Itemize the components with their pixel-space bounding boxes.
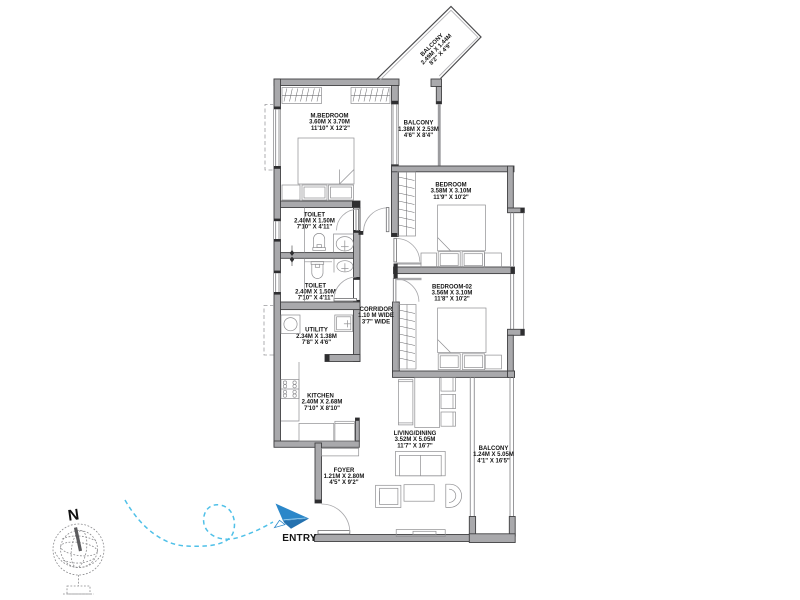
svg-text:TOILET: TOILET xyxy=(304,212,326,218)
svg-text:KITCHEN: KITCHEN xyxy=(307,394,334,400)
svg-text:2.40M X 1.50M: 2.40M X 1.50M xyxy=(295,290,336,296)
svg-text:N: N xyxy=(67,506,80,524)
svg-text:4'1" X 16'5": 4'1" X 16'5" xyxy=(477,458,510,464)
svg-text:4'6" X 8'4": 4'6" X 8'4" xyxy=(404,133,433,139)
svg-text:11'10" X 12'2": 11'10" X 12'2" xyxy=(311,126,350,132)
svg-text:1.21M X 2.80M: 1.21M X 2.80M xyxy=(324,474,365,480)
svg-text:2.34M X 1.38M: 2.34M X 1.38M xyxy=(296,334,337,340)
svg-text:7'10" X 4'11": 7'10" X 4'11" xyxy=(298,296,334,302)
svg-text:7'10" X 4'11": 7'10" X 4'11" xyxy=(297,225,333,231)
svg-text:BALCONY: BALCONY xyxy=(404,121,434,127)
svg-text:1.24M X 5.05M: 1.24M X 5.05M xyxy=(473,452,514,458)
svg-text:7'8" X 4'6": 7'8" X 4'6" xyxy=(302,340,331,346)
svg-text:UTILITY: UTILITY xyxy=(305,328,328,334)
svg-text:2.40M X 1.50M: 2.40M X 1.50M xyxy=(294,219,335,225)
svg-text:CORRIDOR: CORRIDOR xyxy=(360,307,393,313)
svg-text:BEDROOM-02: BEDROOM-02 xyxy=(432,284,473,290)
svg-text:2.40M X 2.68M: 2.40M X 2.68M xyxy=(302,400,343,406)
svg-text:TOILET: TOILET xyxy=(305,283,327,289)
svg-text:3.60M X 3.70M: 3.60M X 3.70M xyxy=(309,120,350,126)
svg-text:ENTRY: ENTRY xyxy=(282,533,317,544)
svg-text:7'10" X 8'10": 7'10" X 8'10" xyxy=(304,406,340,412)
svg-text:M.BEDROOM: M.BEDROOM xyxy=(311,114,349,120)
svg-text:BEDROOM: BEDROOM xyxy=(435,183,466,189)
svg-text:FOYER: FOYER xyxy=(334,468,355,474)
svg-text:11'8" X 10'2": 11'8" X 10'2" xyxy=(434,297,470,303)
svg-text:3.56M X 3.10M: 3.56M X 3.10M xyxy=(432,291,473,297)
svg-text:11'7" X 16'7": 11'7" X 16'7" xyxy=(397,443,433,449)
svg-text:BALCONY: BALCONY xyxy=(479,446,509,452)
svg-text:LIVING/DINING: LIVING/DINING xyxy=(394,431,437,437)
svg-text:3'7" WIDE: 3'7" WIDE xyxy=(362,319,390,325)
svg-text:3.52M X 5.05M: 3.52M X 5.05M xyxy=(395,437,436,443)
svg-text:1.38M X 2.53M: 1.38M X 2.53M xyxy=(398,127,439,133)
svg-text:4'5" X 9'2": 4'5" X 9'2" xyxy=(329,480,358,486)
svg-text:3.58M X 3.10M: 3.58M X 3.10M xyxy=(431,189,472,195)
svg-text:11'9" X 10'2": 11'9" X 10'2" xyxy=(433,195,469,201)
svg-text:1.10 M WIDE: 1.10 M WIDE xyxy=(358,313,394,319)
